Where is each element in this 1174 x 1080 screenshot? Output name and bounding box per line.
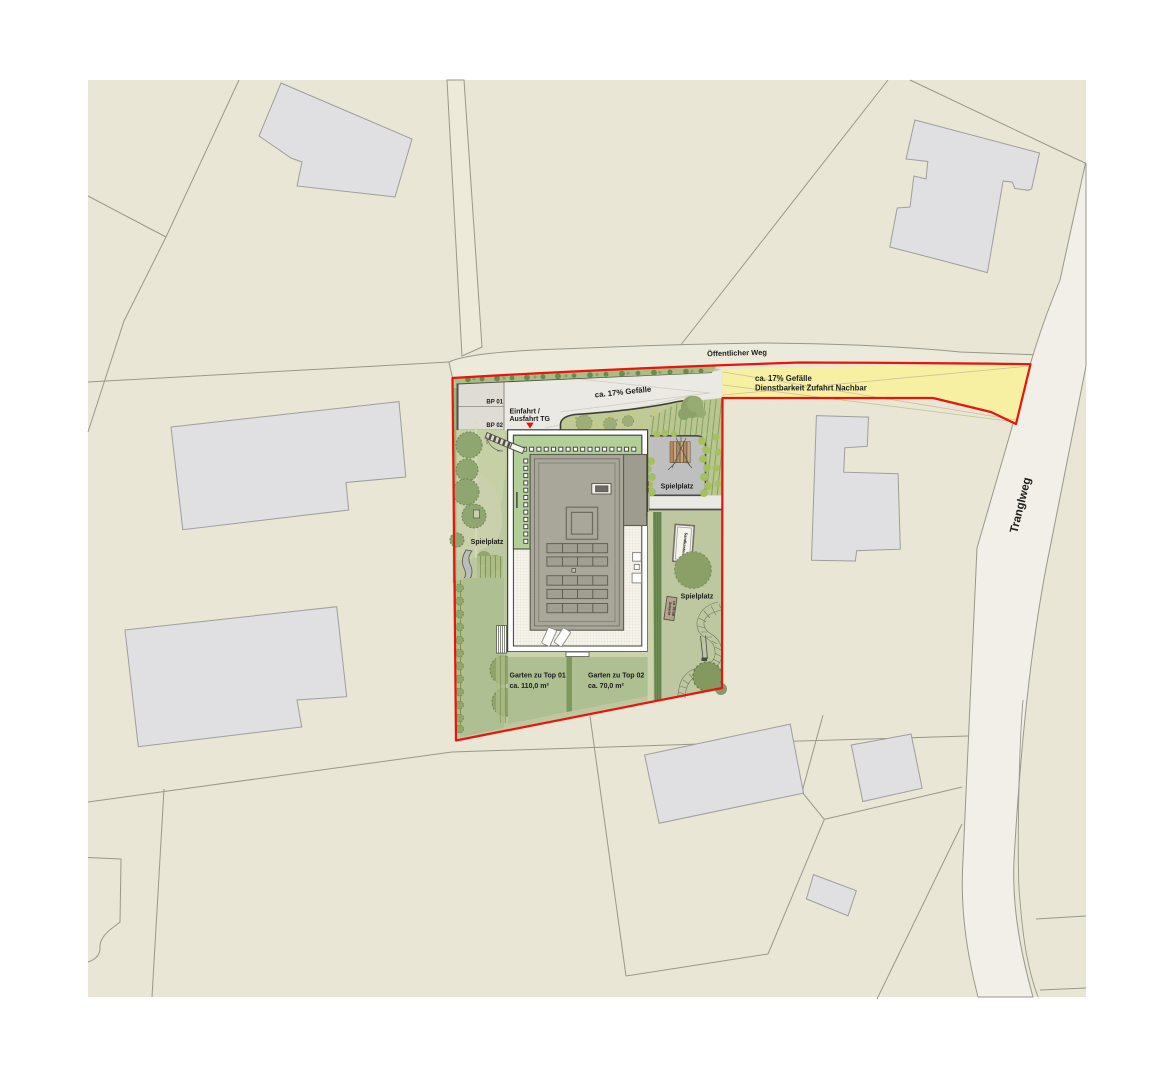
- svg-text:Einfahrt /: Einfahrt /: [510, 409, 540, 416]
- svg-text:ca. 110,0 m²: ca. 110,0 m²: [510, 683, 550, 690]
- svg-text:ca. 17% Gefälle: ca. 17% Gefälle: [755, 374, 812, 383]
- svg-text:BP 02: BP 02: [486, 423, 503, 429]
- svg-text:BP 01: BP 01: [486, 400, 503, 406]
- svg-text:Spielplatz: Spielplatz: [471, 539, 504, 546]
- svg-text:Spielplatz: Spielplatz: [681, 594, 714, 601]
- svg-text:Spielplatz: Spielplatz: [661, 484, 694, 491]
- svg-text:Öffentlicher Weg: Öffentlicher Weg: [707, 348, 768, 359]
- svg-text:Ausfahrt TG: Ausfahrt TG: [510, 416, 551, 423]
- svg-text:Garten zu Top 01: Garten zu Top 01: [510, 673, 566, 680]
- svg-text:Garten zu Top 02: Garten zu Top 02: [588, 673, 644, 680]
- svg-text:ca. 70,0 m²: ca. 70,0 m²: [588, 683, 624, 690]
- svg-text:Dienstbarkeit Zufahrt Nachbar: Dienstbarkeit Zufahrt Nachbar: [755, 384, 867, 393]
